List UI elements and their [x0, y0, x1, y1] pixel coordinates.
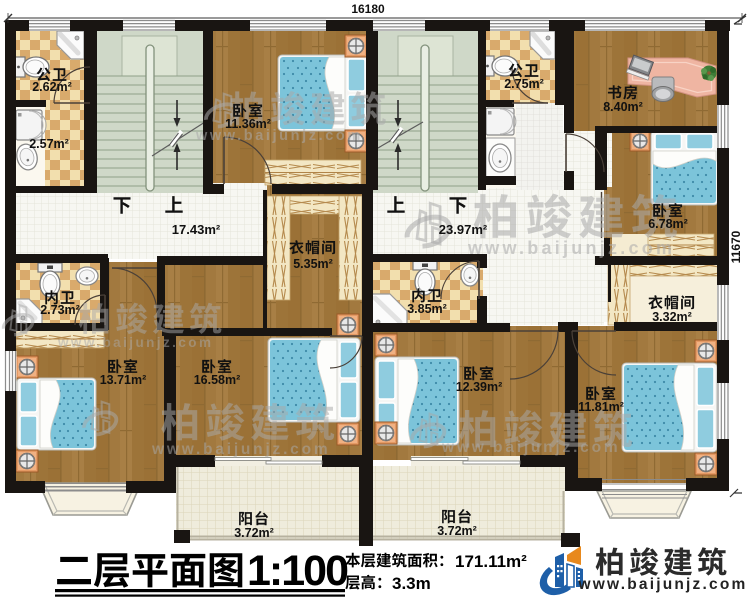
svg-text:3.3m: 3.3m [392, 574, 431, 593]
svg-text:5.35m²: 5.35m² [293, 257, 333, 271]
svg-text:1:100: 1:100 [247, 547, 348, 595]
svg-text:13.71m²: 13.71m² [100, 373, 147, 387]
svg-text:17.43m²: 17.43m² [172, 222, 221, 237]
svg-text:11.36m²: 11.36m² [225, 117, 271, 131]
svg-text:16180: 16180 [351, 2, 385, 16]
svg-text:www.baijunjz.com: www.baijunjz.com [57, 335, 213, 350]
svg-text:www.baijunjz.com: www.baijunjz.com [195, 128, 363, 144]
svg-text:www.baijunjz.com: www.baijunjz.com [441, 439, 620, 456]
svg-text:3.72m²: 3.72m² [437, 524, 477, 538]
svg-text:11670: 11670 [729, 230, 743, 263]
svg-text:2.75m²: 2.75m² [504, 77, 544, 91]
svg-text:2.57m²: 2.57m² [29, 137, 69, 151]
svg-text:www.baijunjz.com: www.baijunjz.com [467, 238, 675, 258]
svg-text:23.97m²: 23.97m² [439, 222, 488, 237]
svg-text:3.32m²: 3.32m² [652, 310, 692, 324]
svg-text:3.72m²: 3.72m² [234, 526, 274, 540]
svg-text:11.81m²: 11.81m² [578, 400, 624, 414]
svg-text:16.58m²: 16.58m² [194, 373, 241, 387]
svg-text:2.62m²: 2.62m² [32, 80, 72, 94]
svg-text:www.baijunjz.com: www.baijunjz.com [151, 441, 330, 458]
svg-text:2.73m²: 2.73m² [40, 303, 80, 317]
svg-text:www.baijunjz.com: www.baijunjz.com [578, 576, 748, 593]
svg-text:3.85m²: 3.85m² [407, 302, 447, 316]
svg-text:6.78m²: 6.78m² [648, 217, 688, 231]
svg-text:171.11m²: 171.11m² [455, 552, 527, 571]
svg-text:8.40m²: 8.40m² [603, 100, 643, 114]
svg-text:12.39m²: 12.39m² [456, 380, 503, 394]
